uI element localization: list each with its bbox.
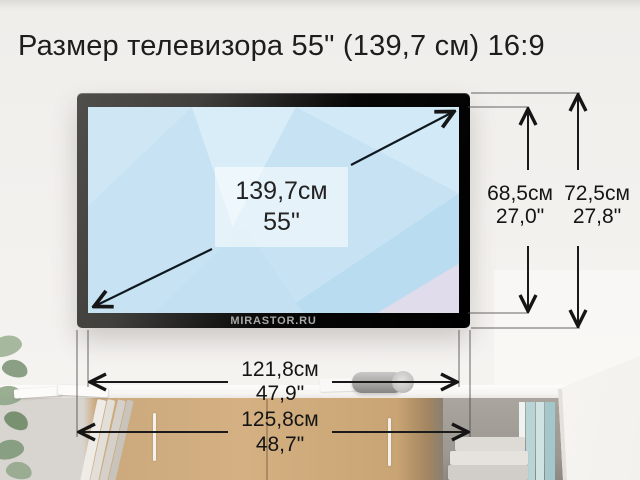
total-width-cm: 125,8см (210, 409, 350, 431)
cabinet-shadow (398, 398, 448, 480)
tv-watermark: MIRASTOR.RU (77, 314, 470, 328)
page-title: Размер телевизора 55" (139,7 см) 16:9 (18, 30, 545, 63)
diagonal-inch: 55" (263, 208, 300, 237)
cabinet-door-handle (388, 418, 391, 466)
screen-width-cm: 121,8см (210, 359, 350, 381)
stacked-book (455, 437, 525, 451)
cabinet-door-handle (153, 413, 156, 461)
book (536, 402, 544, 480)
plant-leaf (0, 357, 29, 380)
total-height-cm: 72,5см (552, 183, 640, 205)
stacked-book (450, 451, 528, 465)
plant-leaf (0, 332, 24, 361)
diagonal-cm: 139,7см (235, 177, 327, 206)
screen-width-inch: 47,9" (210, 383, 350, 405)
tv-size-diagram: MIRASTOR.RU 139,7см 55" (0, 0, 640, 480)
stacked-book (448, 465, 528, 480)
wall-light-panel (494, 270, 640, 390)
diagonal-size-label: 139,7см 55" (215, 167, 348, 247)
cylinder-object-cap (392, 371, 414, 393)
book (545, 402, 555, 480)
total-height-inch: 27,8" (552, 206, 640, 228)
total-width-inch: 48,7" (210, 434, 350, 456)
